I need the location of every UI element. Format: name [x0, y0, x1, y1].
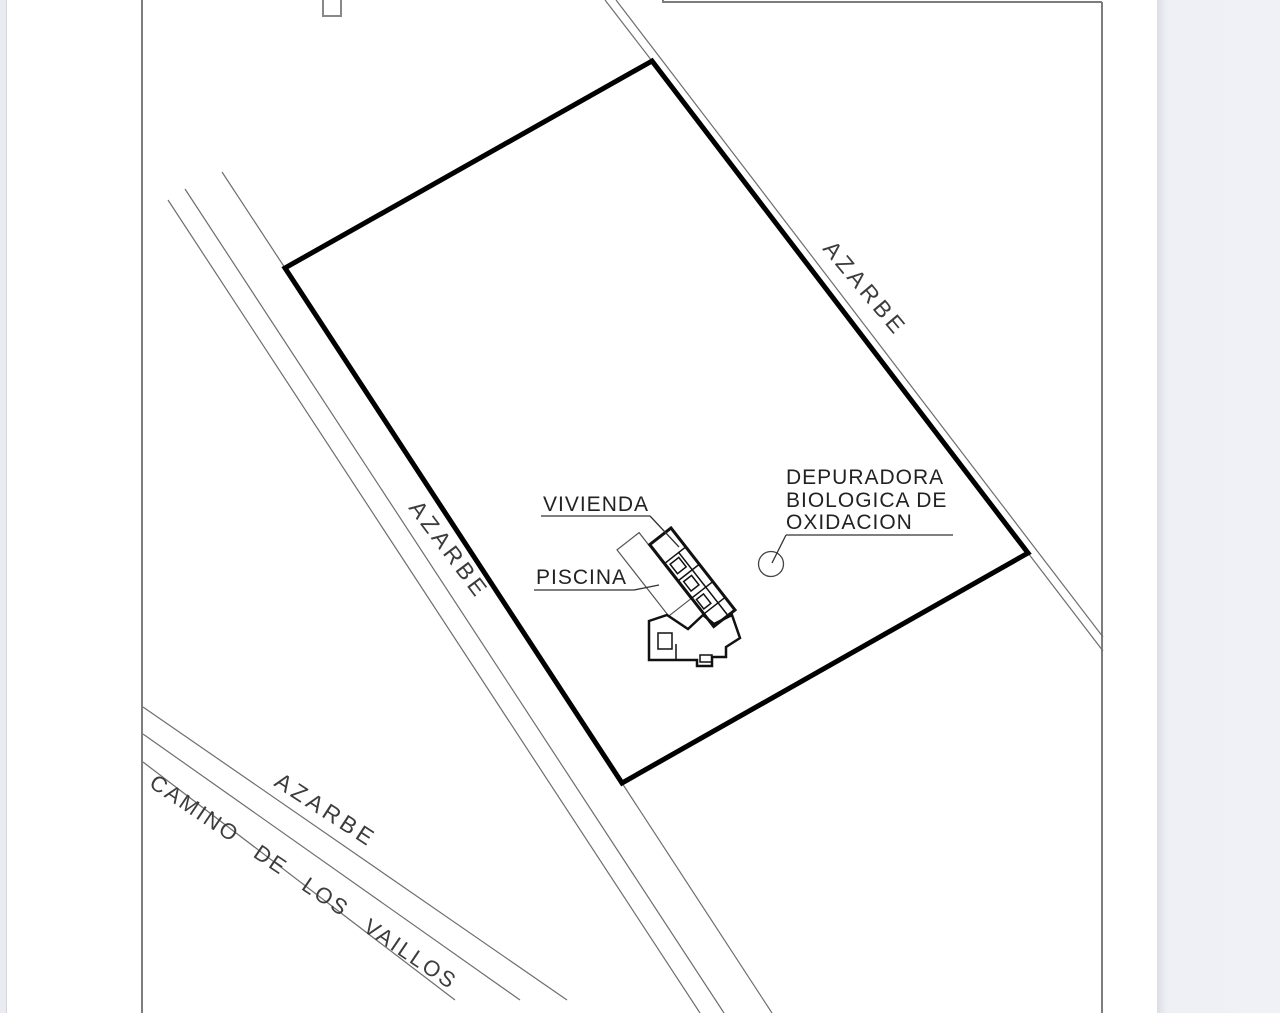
parcel-boundary [285, 61, 1028, 783]
depuradora-circle [759, 552, 784, 577]
road-camino-line-2 [143, 734, 520, 1000]
label-azarbe-bottom: AZARBE [270, 767, 381, 852]
pool-outline [617, 533, 691, 616]
label-piscina: PISCINA [536, 566, 627, 589]
label-vivienda: VIVIENDA [543, 493, 649, 516]
piscina-leader [634, 585, 659, 590]
road-camino-line-1 [143, 707, 567, 1000]
road-azarbe-right-edge-extension-top [605, 0, 652, 61]
label-depuradora-line2: BIOLOGICA DE [786, 489, 947, 512]
label-azarbe-left: AZARBE [404, 495, 495, 603]
site-plan-drawing: VIVIENDA PISCINA DEPURADORA BIOLOGICA DE… [0, 0, 1280, 1013]
house-lower-wing [649, 615, 740, 666]
road-azarbe-right-line [616, 0, 1103, 637]
road-azarbe-left-edge-extension-top [222, 172, 285, 268]
road-azarbe-right-edge-extension-bottom [1028, 553, 1103, 651]
house-wing-detail-3 [700, 655, 712, 662]
road-azarbe-left-line-2 [168, 200, 700, 1013]
top-square-marker [323, 0, 341, 16]
label-depuradora-line1: DEPURADORA [786, 466, 944, 489]
house-wing-detail-1 [658, 633, 672, 649]
road-azarbe-left-edge-extension-bottom [622, 783, 772, 1013]
building-group [617, 515, 735, 644]
label-depuradora-line3: OXIDACION [786, 511, 913, 534]
road-azarbe-left-line-1 [185, 189, 724, 1013]
depuradora-leader [772, 535, 786, 563]
